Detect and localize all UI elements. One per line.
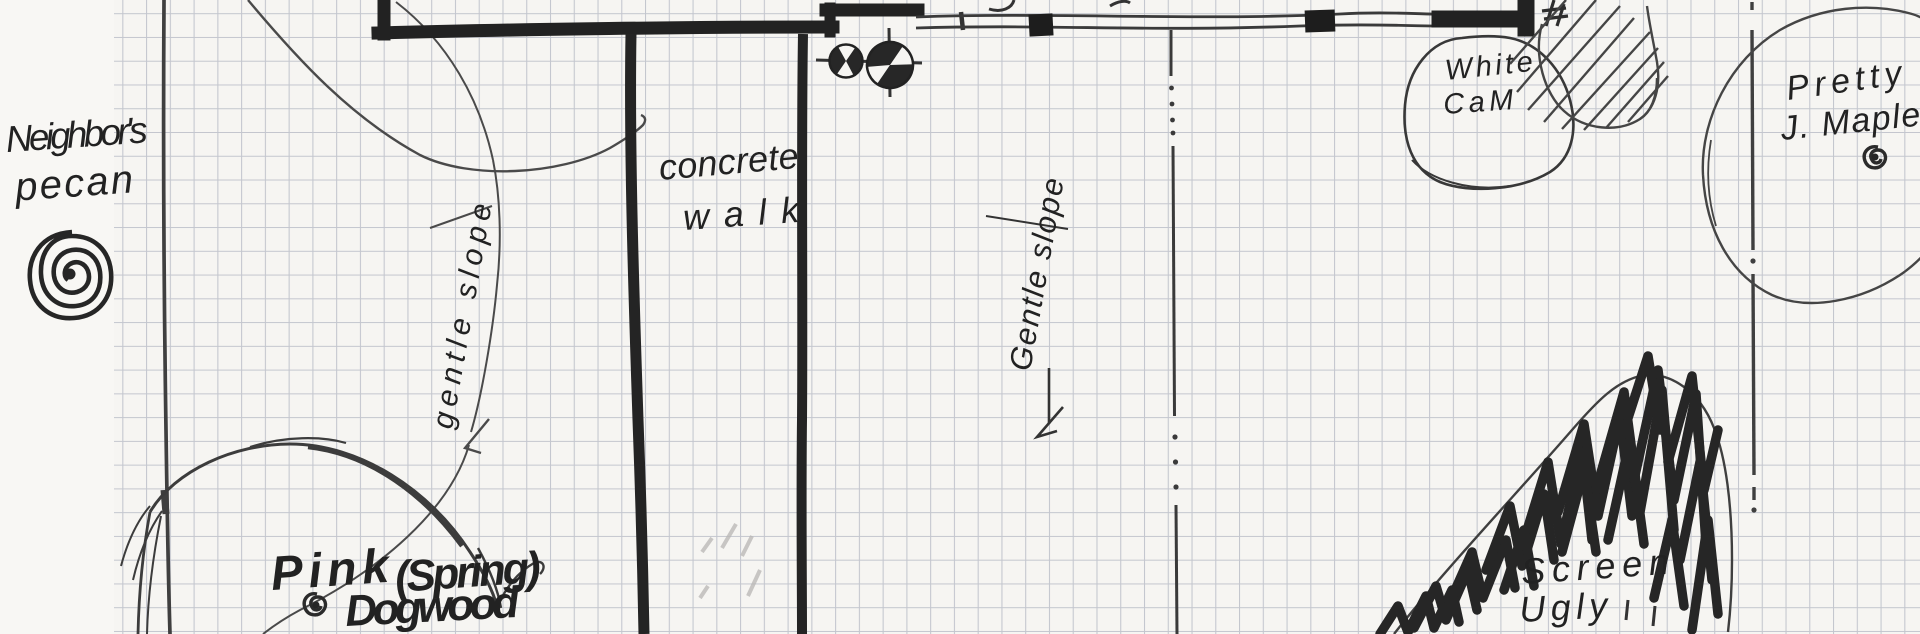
svg-text:CaM: CaM bbox=[1442, 84, 1515, 121]
svg-text:Ugly: Ugly bbox=[1518, 584, 1610, 630]
svg-text:walk: walk bbox=[682, 189, 803, 238]
svg-text:Dogwood: Dogwood bbox=[344, 578, 521, 634]
svg-text:pecan: pecan bbox=[13, 157, 135, 209]
